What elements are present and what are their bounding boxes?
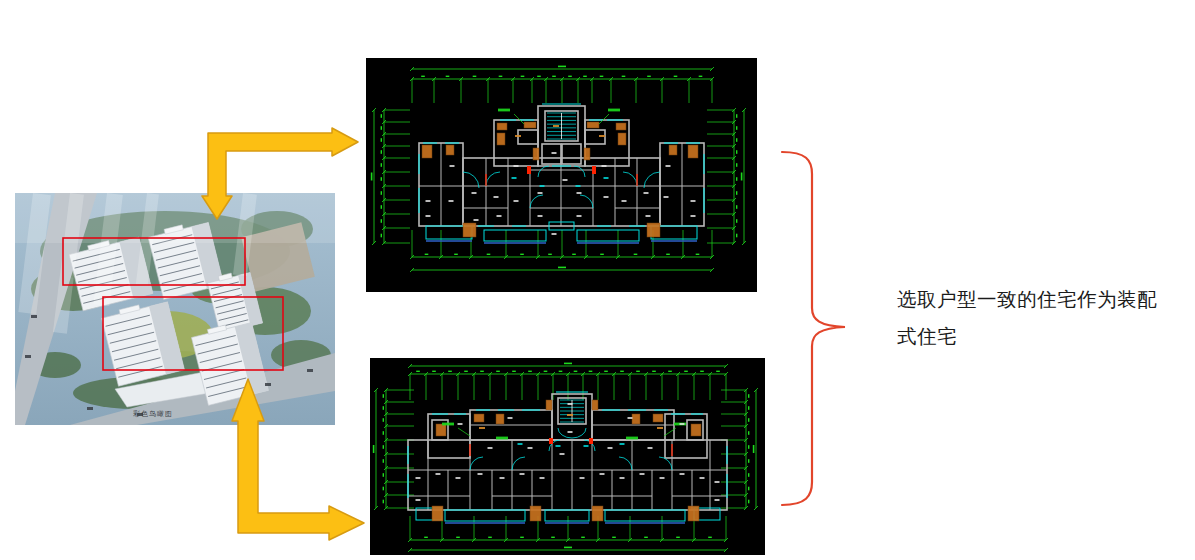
annotation-line-2: 式住宅 xyxy=(897,318,1195,355)
balconies-layer xyxy=(416,508,720,523)
walls-layer xyxy=(408,394,727,510)
windows-layer xyxy=(408,392,727,498)
floor-plan-bottom-drawing xyxy=(370,358,765,555)
floor-plan-bottom[interactable] xyxy=(370,358,765,555)
aerial-render-graphic xyxy=(15,193,335,425)
annotation-line-1: 选取户型一致的住宅作为装配 xyxy=(897,281,1195,318)
floor-plan-top-drawing xyxy=(366,58,757,292)
floor-plan-top[interactable] xyxy=(366,58,757,292)
slide-canvas: 彩色鸟瞰图 选取户型一致的住宅作为装配 式住宅 xyxy=(0,0,1195,560)
annotation-text[interactable]: 选取户型一致的住宅作为装配 式住宅 xyxy=(897,281,1195,355)
aerial-caption: 彩色鸟瞰图 xyxy=(133,409,173,419)
stair-core xyxy=(498,109,620,139)
aerial-render-image[interactable]: 彩色鸟瞰图 xyxy=(15,193,335,425)
curly-brace[interactable] xyxy=(782,152,845,505)
